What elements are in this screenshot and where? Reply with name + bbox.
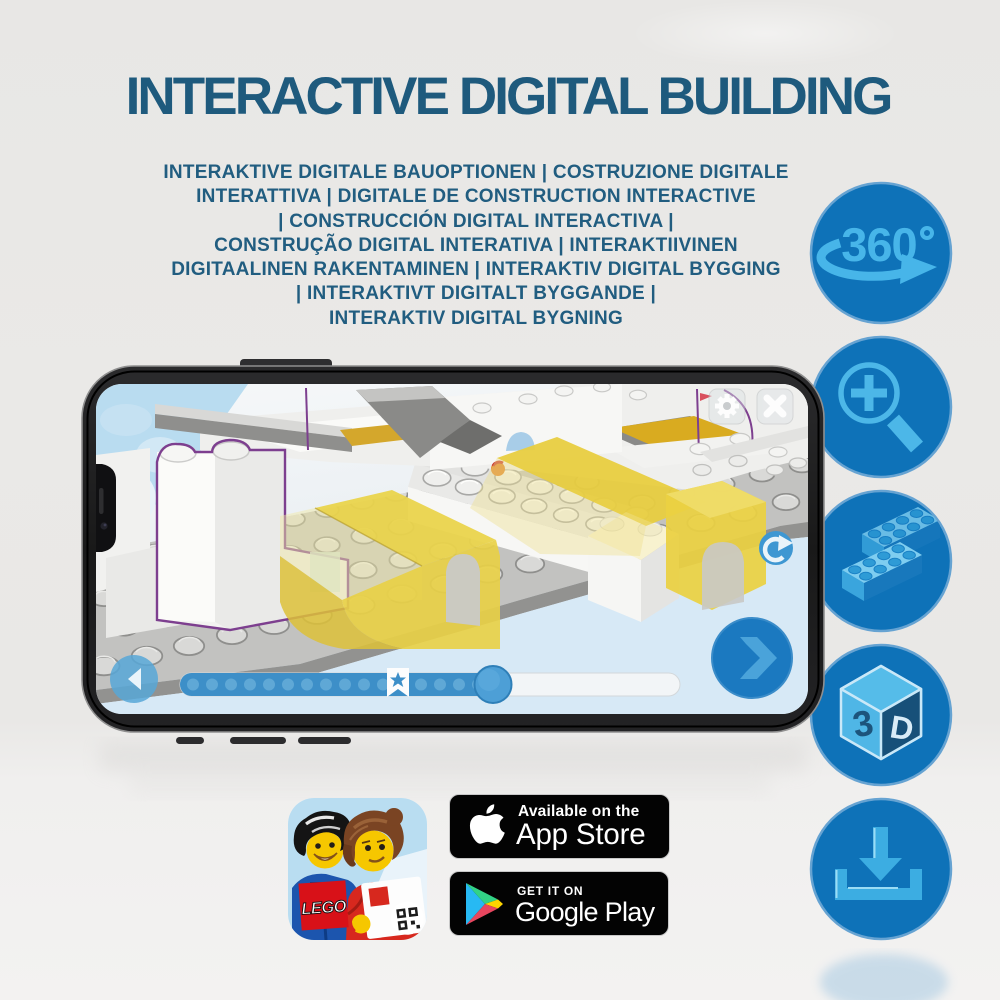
svg-text:LEGO: LEGO [301, 897, 348, 918]
